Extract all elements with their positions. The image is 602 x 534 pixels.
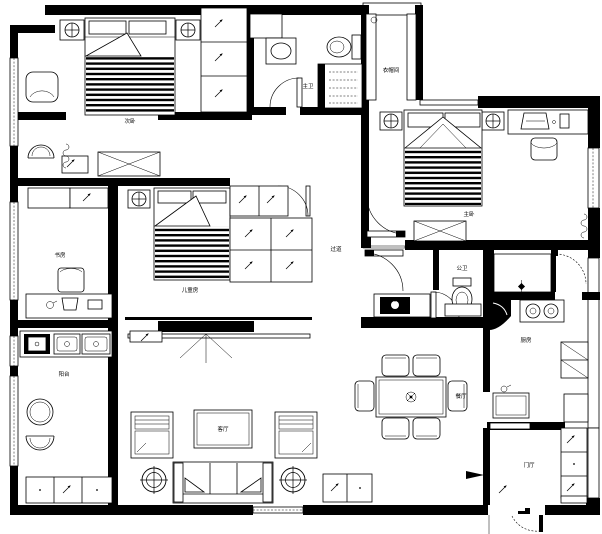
dressing-chair	[28, 145, 54, 158]
nightstand	[482, 112, 504, 130]
door-entry	[489, 508, 543, 534]
window	[10, 336, 18, 366]
door-hall	[365, 250, 403, 291]
armchair	[275, 412, 317, 458]
direction-arrow-icon	[499, 485, 507, 493]
pillow	[129, 21, 166, 34]
wall	[489, 250, 494, 296]
radiator-coil	[581, 214, 587, 238]
double-bed	[404, 110, 482, 206]
room-balcony: 阳台	[20, 331, 112, 503]
room-label-study: 书房	[54, 251, 66, 259]
room-bath2: 公卫	[374, 265, 481, 317]
wall	[10, 25, 55, 33]
vanity-sink	[266, 38, 296, 64]
door-master-bedroom	[367, 196, 405, 237]
duvet	[405, 148, 481, 205]
wall-hatch	[588, 428, 599, 498]
wall-hatch	[588, 258, 599, 428]
room-label-bedroom2: 次卧	[124, 117, 136, 125]
nightstand	[380, 112, 402, 130]
lamp-icon	[384, 114, 398, 128]
double-bed	[85, 18, 175, 115]
room-master-bath: 主卫	[250, 14, 362, 108]
storage-cabinet	[26, 477, 112, 503]
desk-chair	[58, 268, 84, 292]
wall	[483, 428, 490, 505]
duvet	[86, 56, 174, 113]
room-label-bath2: 公卫	[456, 265, 468, 272]
round-stool	[279, 466, 307, 494]
wall	[254, 107, 286, 115]
wall	[487, 292, 555, 300]
bed-bench	[414, 221, 466, 241]
wall	[10, 178, 108, 186]
wall	[10, 33, 18, 58]
lamp-icon	[65, 23, 79, 37]
room-label-balcony: 阳台	[58, 370, 70, 378]
room-living: 客厅	[130, 331, 372, 503]
wall	[125, 317, 312, 320]
window	[253, 507, 303, 513]
wall	[361, 317, 490, 328]
island-cart	[493, 385, 529, 418]
room-label-cloakroom: 衣帽间	[383, 66, 400, 74]
sofa	[173, 462, 273, 503]
pillow	[89, 21, 126, 34]
window	[10, 58, 18, 146]
lamp-icon	[132, 192, 146, 206]
closet-rail	[366, 14, 376, 100]
office-chair	[531, 138, 557, 160]
room-label-living: 客厅	[217, 425, 229, 433]
armchair	[26, 72, 58, 102]
cabinet	[28, 188, 70, 208]
window	[10, 202, 18, 300]
wall	[551, 250, 556, 292]
wall	[361, 111, 369, 237]
wall	[303, 505, 488, 515]
single-bed	[154, 188, 230, 280]
tile-floor	[445, 304, 481, 316]
wall	[478, 96, 600, 108]
dining-chair	[355, 381, 374, 411]
room-label-master-bath: 主卫	[302, 82, 314, 90]
tile-niche	[250, 14, 282, 38]
desk	[508, 110, 588, 134]
cased-opening	[420, 100, 478, 105]
wardrobe	[201, 8, 247, 112]
room-label-kids: 儿童房	[182, 286, 199, 294]
stove	[520, 300, 564, 322]
room-label-foyer: 门厅	[523, 461, 535, 469]
hall-wardrobe	[230, 186, 312, 282]
wall	[10, 505, 253, 515]
vanity	[374, 294, 430, 317]
room-cloakroom: 衣帽间	[366, 14, 416, 100]
dining-chair	[413, 418, 440, 439]
room-kids: 儿童房	[128, 186, 312, 294]
wall	[18, 112, 66, 120]
toilet	[327, 35, 361, 59]
floor-plan-page: 次卧 主卫 衣帽间 主卧 书房	[0, 0, 602, 534]
curved-chair	[26, 436, 54, 450]
wall	[588, 96, 600, 148]
nightstand	[128, 190, 150, 208]
wall	[361, 237, 371, 248]
entry-step	[512, 508, 530, 514]
room-master-bedroom: 主卧	[380, 110, 588, 241]
tv-wall	[158, 321, 254, 332]
dining-chair	[382, 418, 409, 439]
dining-chair	[382, 355, 409, 376]
lamp-icon	[181, 23, 195, 37]
wall	[363, 3, 421, 15]
armchair	[131, 412, 173, 458]
dresser	[98, 152, 160, 176]
fridge	[561, 342, 588, 378]
wall	[433, 250, 439, 290]
wall	[405, 240, 588, 250]
room-study: 书房	[26, 188, 112, 318]
wall	[10, 300, 18, 336]
window	[10, 376, 18, 466]
wall	[545, 505, 600, 515]
laundry-counter	[20, 331, 112, 357]
wall	[588, 208, 600, 258]
room-bedroom2: 次卧	[26, 8, 247, 176]
wall-arrow-marker	[466, 471, 484, 479]
corner-counter	[489, 300, 511, 330]
shower-room	[494, 254, 551, 292]
room-label-master-bedroom: 主卧	[463, 210, 475, 218]
dressing-bench	[62, 156, 88, 173]
nightstand	[60, 20, 84, 40]
wall	[10, 320, 108, 328]
room-label-kitchen: 厨房	[520, 336, 532, 344]
wall	[582, 292, 600, 300]
room-dining: 餐厅	[355, 355, 467, 439]
desk	[26, 294, 112, 318]
washer	[54, 334, 80, 354]
window	[588, 148, 599, 208]
duvet	[155, 226, 229, 279]
bathtub	[318, 64, 362, 108]
pillow	[158, 191, 191, 203]
room-label-hallway: 过道	[330, 245, 342, 253]
lamp-icon	[486, 114, 500, 128]
tile-strip	[561, 496, 587, 503]
closet-rail	[407, 14, 416, 100]
kettle	[501, 386, 507, 392]
door-master-bath	[270, 78, 302, 107]
plant-cabinet	[323, 474, 372, 502]
dryer	[82, 334, 110, 354]
cabinet	[70, 188, 108, 208]
round-table	[27, 399, 53, 425]
wall	[10, 146, 18, 202]
dining-chair	[413, 355, 440, 376]
wall	[10, 466, 18, 511]
tile-floor	[564, 394, 588, 422]
door-kitchen-sliding	[554, 250, 586, 284]
book	[88, 300, 102, 309]
wall	[118, 178, 230, 186]
laptop	[62, 298, 78, 310]
room-label-dining: 餐厅	[455, 392, 467, 400]
wall-brick	[490, 423, 530, 429]
round-stool	[140, 466, 168, 494]
floor-plan-svg: 次卧 主卫 衣帽间 主卧 书房	[0, 0, 602, 534]
shoe-cabinet	[561, 428, 587, 498]
nightstand	[176, 20, 200, 40]
wall	[483, 300, 490, 392]
wall	[10, 366, 18, 376]
room-kitchen: 厨房	[489, 300, 588, 422]
side-cabinet	[130, 331, 162, 342]
